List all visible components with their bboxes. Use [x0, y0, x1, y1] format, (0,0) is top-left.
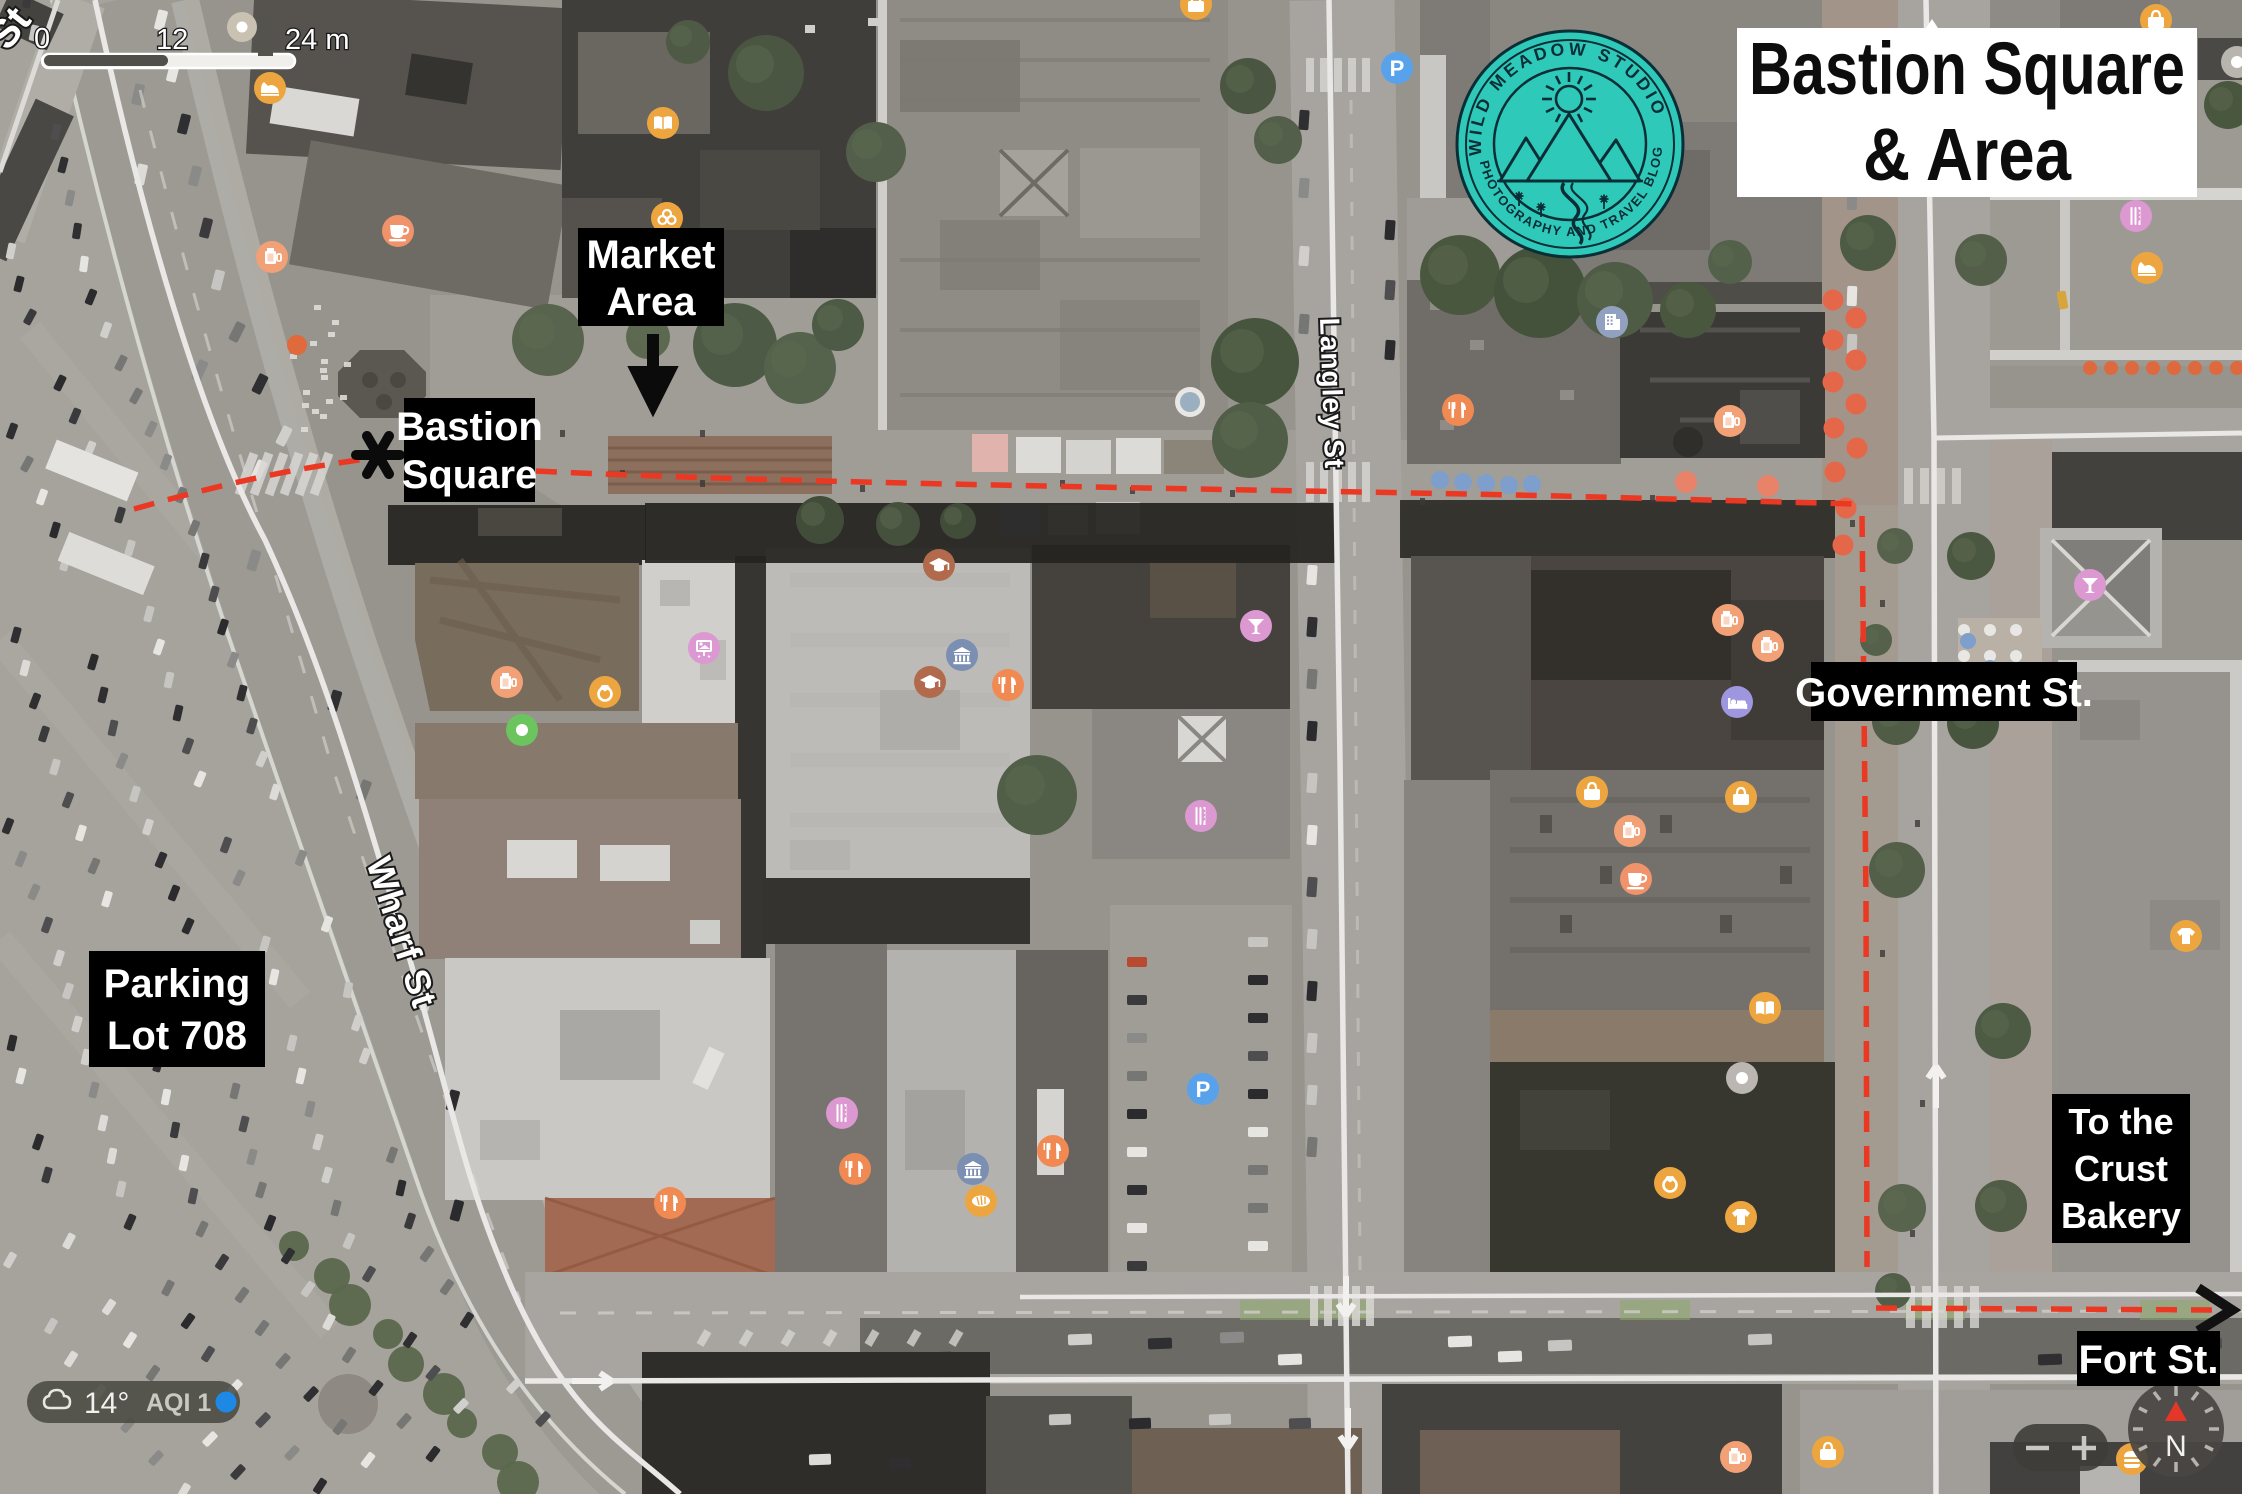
svg-text:Bastion: Bastion [396, 405, 543, 449]
svg-text:& Area: & Area [1863, 113, 2072, 196]
svg-text:Lot 708: Lot 708 [107, 1014, 247, 1058]
svg-text:Bakery: Bakery [2061, 1195, 2181, 1236]
svg-text:Square: Square [402, 453, 538, 497]
svg-text:14°: 14° [84, 1387, 129, 1420]
svg-text:Area: Area [607, 280, 697, 324]
svg-text:Market: Market [587, 233, 716, 277]
svg-text:0: 0 [34, 23, 50, 55]
svg-text:P: P [1196, 1077, 1211, 1102]
svg-text:N: N [2165, 1430, 2187, 1463]
svg-text:Government St.: Government St. [1795, 671, 2093, 715]
svg-text:12: 12 [156, 24, 188, 56]
svg-text:Bastion Square: Bastion Square [1749, 27, 2185, 110]
svg-text:24 m: 24 m [285, 24, 349, 56]
svg-text:Parking: Parking [104, 962, 251, 1006]
svg-text:Crust: Crust [2074, 1148, 2168, 1189]
svg-text:Fort St.: Fort St. [2079, 1338, 2219, 1382]
svg-text:AQI 1: AQI 1 [146, 1389, 211, 1417]
svg-text:To the: To the [2068, 1101, 2173, 1142]
svg-text:Langley St: Langley St [1314, 317, 1350, 470]
svg-text:P: P [1390, 56, 1405, 81]
